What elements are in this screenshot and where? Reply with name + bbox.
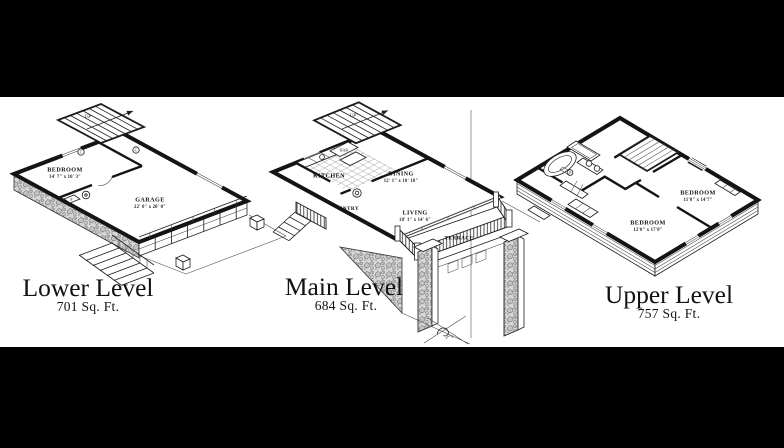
planter-cube <box>176 255 190 270</box>
room-label-bar: BAR <box>340 148 349 153</box>
room-dims-living: 18' 1" x 14' 6" <box>399 218 431 223</box>
floorplan-canvas: UP C C F BEDROOM 14' 7" x 10' 3" GARAGE … <box>0 97 784 347</box>
fixture-label: C <box>80 150 83 155</box>
main-up-label: UP <box>350 114 357 119</box>
lower-level-area: 701 Sq. Ft. <box>57 299 120 314</box>
floorplan-page: { "colors": { "background": "#000000", "… <box>0 0 784 448</box>
planter-cube <box>250 215 264 230</box>
main-level-title: Main Level <box>285 272 403 301</box>
room-dims-garage: 22' 0" x 20' 0" <box>134 205 166 210</box>
room-label-garage: GARAGE <box>135 197 165 204</box>
room-label-bedroom: BEDROOM <box>47 167 82 174</box>
main-level-area: 684 Sq. Ft. <box>315 298 378 313</box>
room-dims-bedroom: 14' 7" x 10' 3" <box>49 175 81 180</box>
upper-level-area: 757 Sq. Ft. <box>638 306 701 321</box>
room-label-terrace: TERRACE <box>444 236 473 242</box>
room-label-living: LIVING <box>402 210 427 217</box>
room-label-bedroom: BEDROOM <box>630 220 665 227</box>
upper-level-title: Upper Level <box>605 280 733 309</box>
lower-level-title: Lower Level <box>23 273 154 302</box>
room-label-dining: DINING <box>388 171 413 178</box>
room-label-kitchen: KITCHEN <box>313 173 345 180</box>
upper-outer-walls <box>517 118 758 262</box>
room-label-bedroom: BEDROOM <box>680 190 715 197</box>
room-dims-dining: 12' 1" x 10' 10" <box>384 179 419 184</box>
stone-pillar <box>500 229 528 336</box>
letterbox-bottom <box>0 347 784 448</box>
fixture-label: C <box>135 148 138 153</box>
main-level-plan: BAR UP TERRACE <box>273 102 540 344</box>
room-label-entry: ENTRY <box>339 206 359 212</box>
main-entry-stairs <box>273 202 326 241</box>
lower-up-label: UP <box>85 115 92 120</box>
letterbox-top <box>0 0 784 97</box>
room-dims-bedroom: 11'0" x 14'7" <box>684 198 713 203</box>
lower-level-plan: UP C C F BEDROOM 14' 7" x 10' 3" GARAGE … <box>14 104 286 314</box>
floorplan-illustration: UP C C F BEDROOM 14' 7" x 10' 3" GARAGE … <box>0 97 784 347</box>
room-dims-bedroom: 12'0" x 17'0" <box>633 228 662 233</box>
upper-level-plan: BEDROOM 11'0" x 14'7" BEDROOM 12'0" x 17… <box>517 118 758 321</box>
